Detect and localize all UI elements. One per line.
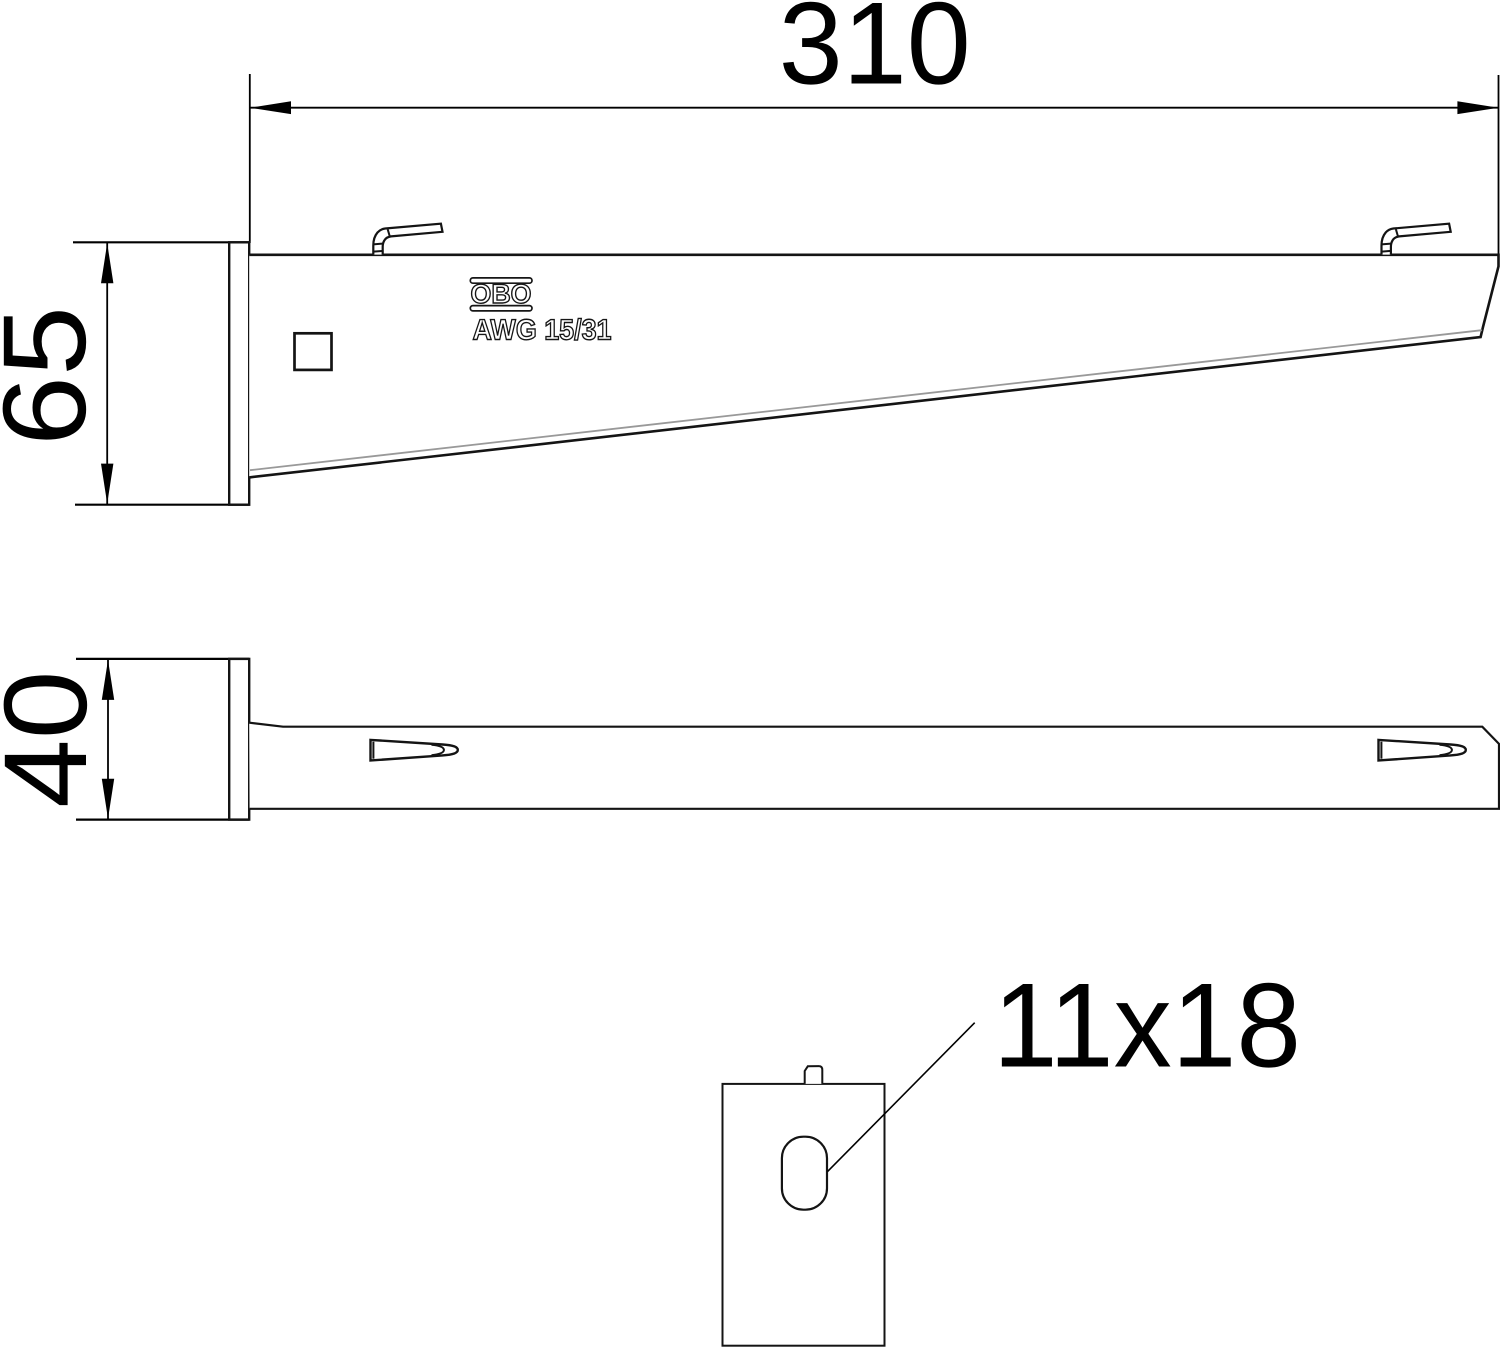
svg-text:310: 310 [779,0,971,108]
svg-text:65: 65 [0,306,111,446]
svg-text:AWG 15/31: AWG 15/31 [473,315,612,347]
svg-text:11x18: 11x18 [993,959,1301,1093]
svg-text:40: 40 [0,671,112,809]
svg-text:OBO: OBO [471,279,532,309]
